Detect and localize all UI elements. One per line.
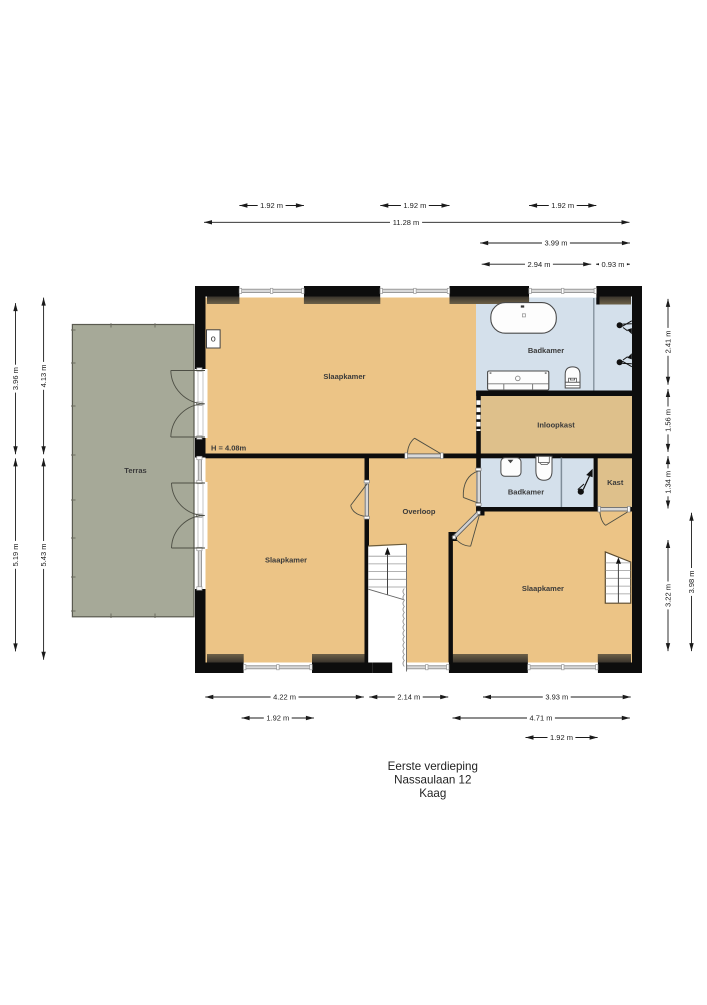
svg-text:11.28 m: 11.28 m xyxy=(393,218,420,227)
svg-text:1.92 m: 1.92 m xyxy=(550,733,573,742)
svg-text:Badkamer: Badkamer xyxy=(508,488,544,497)
svg-text:0.93 m: 0.93 m xyxy=(602,260,625,269)
svg-text:Nassaulaan 12: Nassaulaan 12 xyxy=(394,774,471,787)
svg-text:1.56 m: 1.56 m xyxy=(664,409,673,432)
svg-text:4.22 m: 4.22 m xyxy=(273,693,296,702)
svg-text:o: o xyxy=(211,334,216,344)
svg-text:4.71 m: 4.71 m xyxy=(530,714,553,723)
svg-text:Inloopkast: Inloopkast xyxy=(537,420,575,429)
svg-text:Badkamer: Badkamer xyxy=(528,346,564,355)
svg-text:H = 4.08m: H = 4.08m xyxy=(211,443,247,452)
svg-text:1.92 m: 1.92 m xyxy=(403,201,426,210)
svg-text:Slaapkamer: Slaapkamer xyxy=(265,556,307,565)
svg-text:4.13 m: 4.13 m xyxy=(39,364,48,387)
svg-text:5.19 m: 5.19 m xyxy=(11,543,20,566)
svg-text:Slaapkamer: Slaapkamer xyxy=(323,372,365,381)
svg-text:Slaapkamer: Slaapkamer xyxy=(522,584,564,593)
svg-text:3.96 m: 3.96 m xyxy=(11,367,20,390)
svg-text:2.94 m: 2.94 m xyxy=(528,260,551,269)
svg-text:1.92 m: 1.92 m xyxy=(266,714,289,723)
svg-text:5.43 m: 5.43 m xyxy=(39,544,48,567)
svg-text:2.14 m: 2.14 m xyxy=(397,693,420,702)
svg-text:2.41 m: 2.41 m xyxy=(664,330,673,353)
svg-text:1.92 m: 1.92 m xyxy=(551,201,574,210)
svg-text:3.22 m: 3.22 m xyxy=(664,584,673,607)
svg-text:Terras: Terras xyxy=(124,466,146,475)
svg-text:Kaag: Kaag xyxy=(419,787,446,800)
svg-text:Kast: Kast xyxy=(607,478,624,487)
svg-text:Eerste verdieping: Eerste verdieping xyxy=(388,760,478,773)
svg-text:3.98 m: 3.98 m xyxy=(687,570,696,593)
svg-text:1.92 m: 1.92 m xyxy=(260,201,283,210)
svg-text:1.34 m: 1.34 m xyxy=(664,471,673,494)
svg-text:3.93 m: 3.93 m xyxy=(545,693,568,702)
svg-text:3.99 m: 3.99 m xyxy=(545,239,568,248)
svg-text:Overloop: Overloop xyxy=(403,507,436,516)
